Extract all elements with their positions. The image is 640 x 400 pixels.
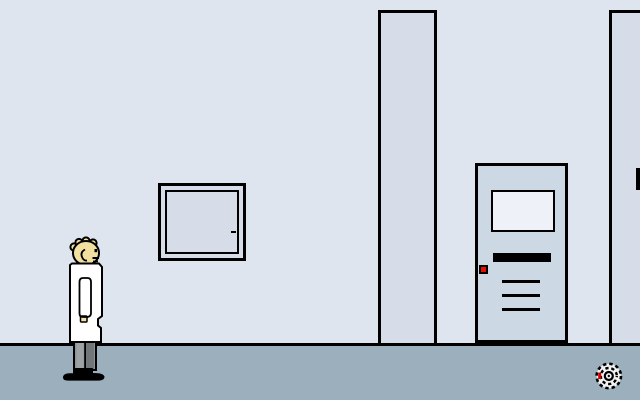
wall-cabinet-door[interactable] bbox=[165, 190, 239, 254]
lab-coat bbox=[70, 264, 102, 343]
door-sign bbox=[493, 253, 551, 262]
floor-drain[interactable] bbox=[595, 362, 623, 390]
offscreen-frame-edge bbox=[636, 168, 640, 190]
wall-cabinet[interactable] bbox=[158, 183, 246, 261]
drain-center bbox=[608, 375, 610, 377]
eye bbox=[95, 249, 98, 252]
door-vent-slit bbox=[502, 294, 540, 297]
cabinet-handle-icon[interactable] bbox=[231, 231, 236, 233]
hall-door[interactable] bbox=[475, 163, 568, 343]
chin-line bbox=[93, 261, 98, 263]
shoes bbox=[63, 368, 105, 381]
mouth bbox=[93, 257, 100, 259]
door-window bbox=[491, 190, 555, 232]
drain-red-mark bbox=[598, 373, 601, 380]
pants bbox=[74, 342, 96, 370]
door-red-button[interactable] bbox=[479, 265, 488, 274]
game-scene bbox=[0, 0, 640, 400]
character-scientist[interactable] bbox=[58, 236, 110, 384]
door-vent-slit bbox=[502, 280, 540, 283]
pillar-middle bbox=[378, 10, 437, 343]
door-vent-slit bbox=[502, 308, 540, 311]
